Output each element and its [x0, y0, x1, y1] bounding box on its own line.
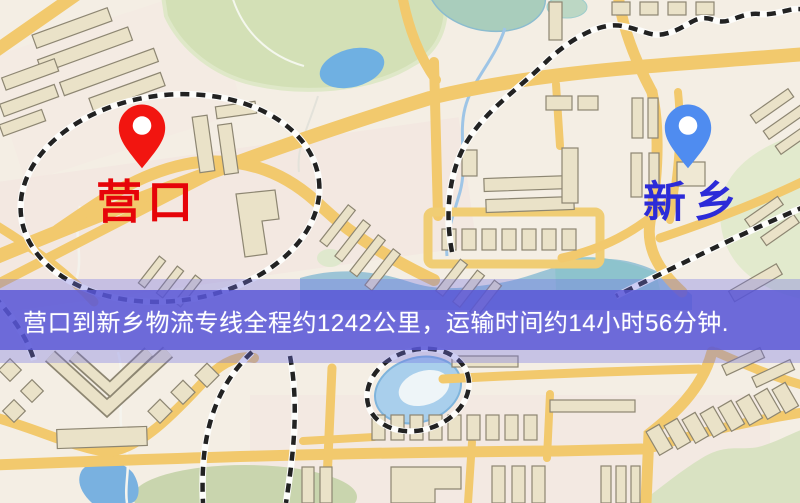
- pin-hole: [679, 116, 698, 135]
- map-screenshot: 营口 新乡 营口到新乡物流专线全程约1242公里，运输时间约14小时56分钟.: [0, 0, 800, 503]
- route-banner: 营口到新乡物流专线全程约1242公里，运输时间约14小时56分钟.: [0, 290, 800, 350]
- origin-label: 营口: [96, 175, 198, 229]
- route-banner-text: 营口到新乡物流专线全程约1242公里，运输时间约14小时56分钟.: [0, 303, 729, 338]
- pin-hole: [133, 116, 152, 135]
- map-canvas[interactable]: 营口 新乡: [0, 0, 800, 503]
- destination-label: 新乡: [643, 178, 745, 228]
